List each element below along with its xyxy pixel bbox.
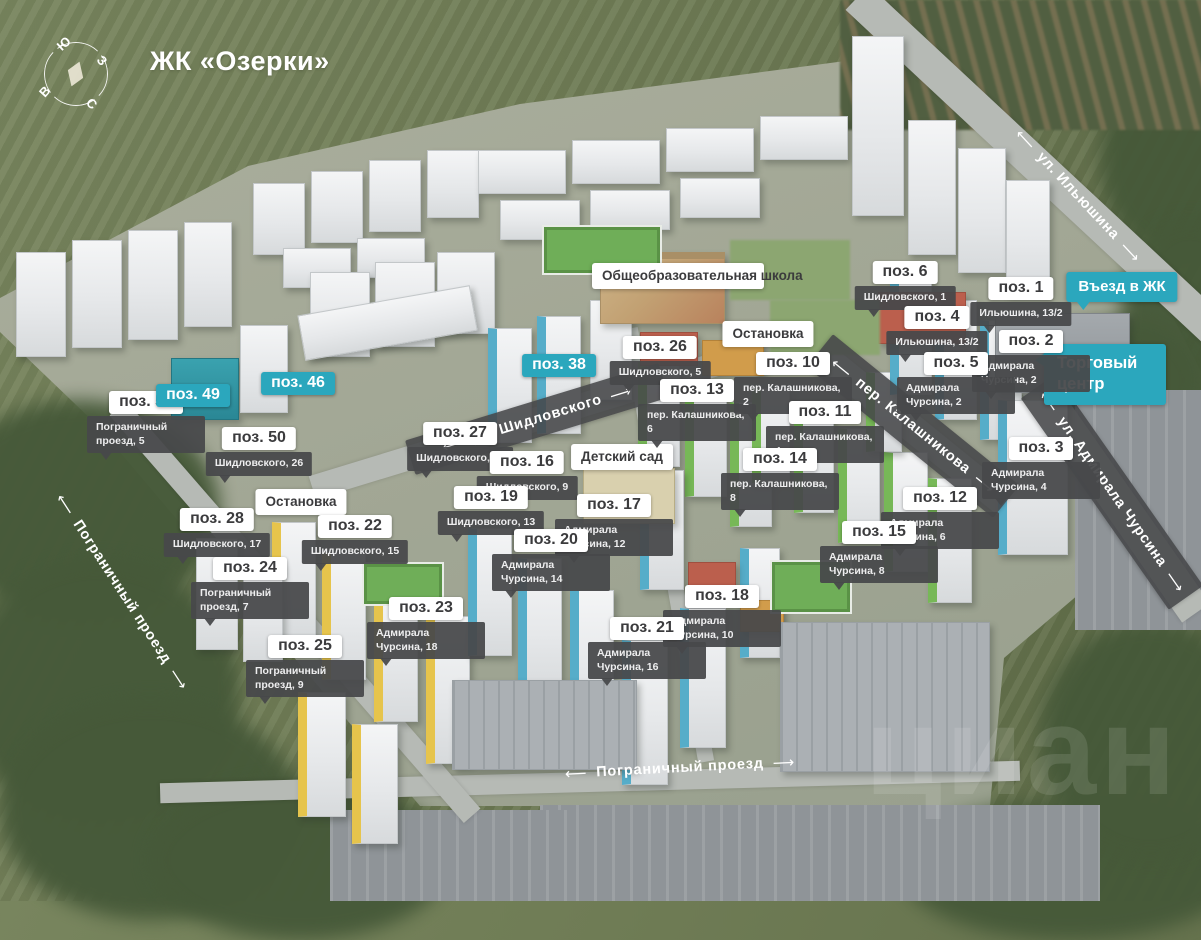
position-label-1[interactable]: поз. 1 xyxy=(989,277,1054,300)
position-label-5[interactable]: поз. 5 xyxy=(924,352,989,375)
position-marker-28[interactable]: поз. 28Шидловского, 17 xyxy=(164,508,270,557)
position-marker-14[interactable]: поз. 14пер. Калашникова, 8 xyxy=(721,448,839,510)
position-address-25: Пограничный проезд, 9 xyxy=(246,660,364,697)
position-label-4[interactable]: поз. 4 xyxy=(905,306,970,329)
position-label-22[interactable]: поз. 22 xyxy=(318,515,392,538)
position-label-21[interactable]: поз. 21 xyxy=(610,617,684,640)
position-label-28[interactable]: поз. 28 xyxy=(180,508,254,531)
position-label-14[interactable]: поз. 14 xyxy=(743,448,817,471)
position-label-20[interactable]: поз. 20 xyxy=(514,529,588,552)
position-marker-3[interactable]: поз. 3Адмирала Чурсина, 4 xyxy=(982,437,1100,499)
position-marker-15[interactable]: поз. 15Адмирала Чурсина, 8 xyxy=(820,521,938,583)
ozerki-masterplan-map: { "title": "ЖК «Озерки»", "watermark": "… xyxy=(0,0,1201,901)
position-label-18[interactable]: поз. 18 xyxy=(685,585,759,608)
position-address-22: Шидловского, 15 xyxy=(302,540,408,564)
position-label-26[interactable]: поз. 26 xyxy=(623,336,697,359)
position-address-24: Пограничный проезд, 7 xyxy=(191,582,309,619)
position-label-2[interactable]: поз. 2 xyxy=(999,330,1064,353)
position-label-19[interactable]: поз. 19 xyxy=(454,486,528,509)
position-marker-46[interactable]: поз. 46 xyxy=(261,372,335,395)
position-label-3[interactable]: поз. 3 xyxy=(1009,437,1074,460)
position-marker-20[interactable]: поз. 20Адмирала Чурсина, 14 xyxy=(492,529,610,591)
position-marker-5[interactable]: поз. 5Адмирала Чурсина, 2 xyxy=(897,352,1015,414)
position-marker-24[interactable]: поз. 24Пограничный проезд, 7 xyxy=(191,557,309,619)
position-label-49[interactable]: поз. 49 xyxy=(156,384,230,407)
position-marker-49[interactable]: поз. 49 xyxy=(156,384,230,407)
position-label-10[interactable]: поз. 10 xyxy=(756,352,830,375)
position-label-46[interactable]: поз. 46 xyxy=(261,372,335,395)
position-label-25[interactable]: поз. 25 xyxy=(268,635,342,658)
position-address-21: Адмирала Чурсина, 16 xyxy=(588,642,706,679)
position-marker-25[interactable]: поз. 25Пограничный проезд, 9 xyxy=(246,635,364,697)
position-marker-23[interactable]: поз. 23Адмирала Чурсина, 18 xyxy=(367,597,485,659)
position-label-13[interactable]: поз. 13 xyxy=(660,379,734,402)
position-address-28: Шидловского, 17 xyxy=(164,533,270,557)
position-marker-22[interactable]: поз. 22Шидловского, 15 xyxy=(302,515,408,564)
position-marker-19[interactable]: поз. 19Шидловского, 13 xyxy=(438,486,544,535)
position-marker-21[interactable]: поз. 21Адмирала Чурсина, 16 xyxy=(588,617,706,679)
position-label-12[interactable]: поз. 12 xyxy=(903,487,977,510)
position-label-16[interactable]: поз. 16 xyxy=(490,451,564,474)
position-label-17[interactable]: поз. 17 xyxy=(577,494,651,517)
position-label-6[interactable]: поз. 6 xyxy=(873,261,938,284)
position-label-27[interactable]: поз. 27 xyxy=(423,422,497,445)
position-address-50: Шидловского, 26 xyxy=(206,452,312,476)
position-label-50[interactable]: поз. 50 xyxy=(222,427,296,450)
position-address-5: Адмирала Чурсина, 2 xyxy=(897,377,1015,414)
position-label-15[interactable]: поз. 15 xyxy=(842,521,916,544)
position-address-3: Адмирала Чурсина, 4 xyxy=(982,462,1100,499)
position-address-14: пер. Калашникова, 8 xyxy=(721,473,839,510)
position-address-15: Адмирала Чурсина, 8 xyxy=(820,546,938,583)
position-marker-6[interactable]: поз. 6Шидловского, 1 xyxy=(855,261,956,310)
position-marker-26[interactable]: поз. 26Шидловского, 5 xyxy=(610,336,711,385)
position-label-11[interactable]: поз. 11 xyxy=(789,401,862,424)
position-marker-50[interactable]: поз. 50Шидловского, 26 xyxy=(206,427,312,476)
position-label-23[interactable]: поз. 23 xyxy=(389,597,463,620)
position-address-23: Адмирала Чурсина, 18 xyxy=(367,622,485,659)
position-label-24[interactable]: поз. 24 xyxy=(213,557,287,580)
position-markers-layer: поз. 53Пограничный проезд, 5поз. 49поз. … xyxy=(0,0,1201,901)
position-label-38[interactable]: поз. 38 xyxy=(522,354,596,377)
position-address-53: Пограничный проезд, 5 xyxy=(87,416,205,453)
position-marker-38[interactable]: поз. 38 xyxy=(522,354,596,377)
position-address-20: Адмирала Чурсина, 14 xyxy=(492,554,610,591)
